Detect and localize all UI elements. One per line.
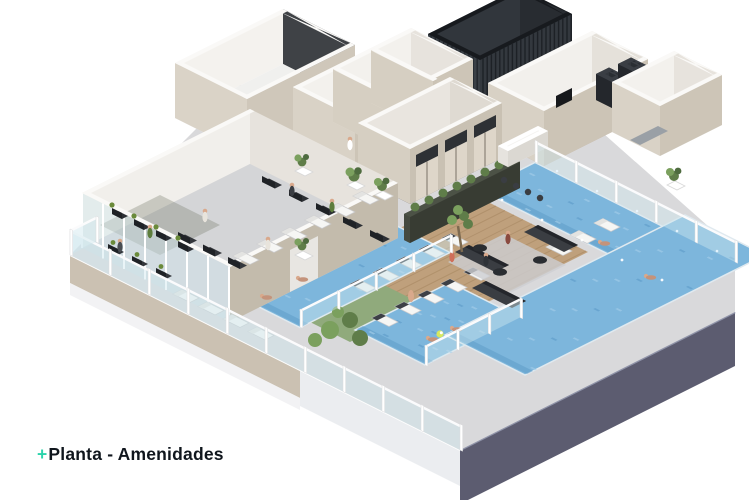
caption-title: Planta - Amenidades xyxy=(48,444,223,465)
isometric-scene xyxy=(0,0,749,500)
caption-plus-icon: + xyxy=(37,444,47,465)
floorplan-rendering: + Planta - Amenidades xyxy=(0,0,749,500)
caption: + Planta - Amenidades xyxy=(37,444,224,465)
